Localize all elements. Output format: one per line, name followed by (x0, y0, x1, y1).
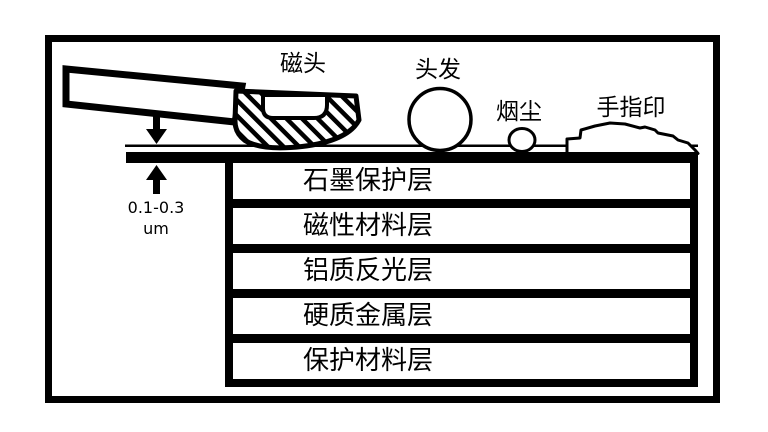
layer-label: 铝质反光层 (233, 253, 690, 289)
layer-row-aluminum: 铝质反光层 (233, 253, 690, 289)
layer-row-graphite: 石墨保护层 (233, 163, 690, 199)
gap-value-label: 0.1-0.3 (128, 199, 185, 217)
disk-surface-bar (126, 152, 698, 163)
hair-label: 头发 (415, 57, 461, 83)
layer-row-protective: 保护材料层 (233, 343, 690, 379)
gap-unit-label: um (143, 220, 169, 238)
layer-row-hard-metal: 硬质金属层 (233, 298, 690, 334)
layer-label: 磁性材料层 (233, 208, 690, 244)
layer-label: 石墨保护层 (233, 163, 690, 199)
fingerprint-label: 手指印 (597, 95, 666, 121)
disk-layer-stack: 石墨保护层 磁性材料层 铝质反光层 硬质金属层 保护材料层 (225, 163, 698, 387)
layer-row-magnetic: 磁性材料层 (233, 208, 690, 244)
disk-head-diagram: 石墨保护层 磁性材料层 铝质反光层 硬质金属层 保护材料层 (0, 0, 768, 432)
layer-label: 保护材料层 (233, 343, 690, 379)
dust-label: 烟尘 (496, 99, 542, 125)
layer-label: 硬质金属层 (233, 298, 690, 334)
head-label: 磁头 (280, 51, 326, 77)
